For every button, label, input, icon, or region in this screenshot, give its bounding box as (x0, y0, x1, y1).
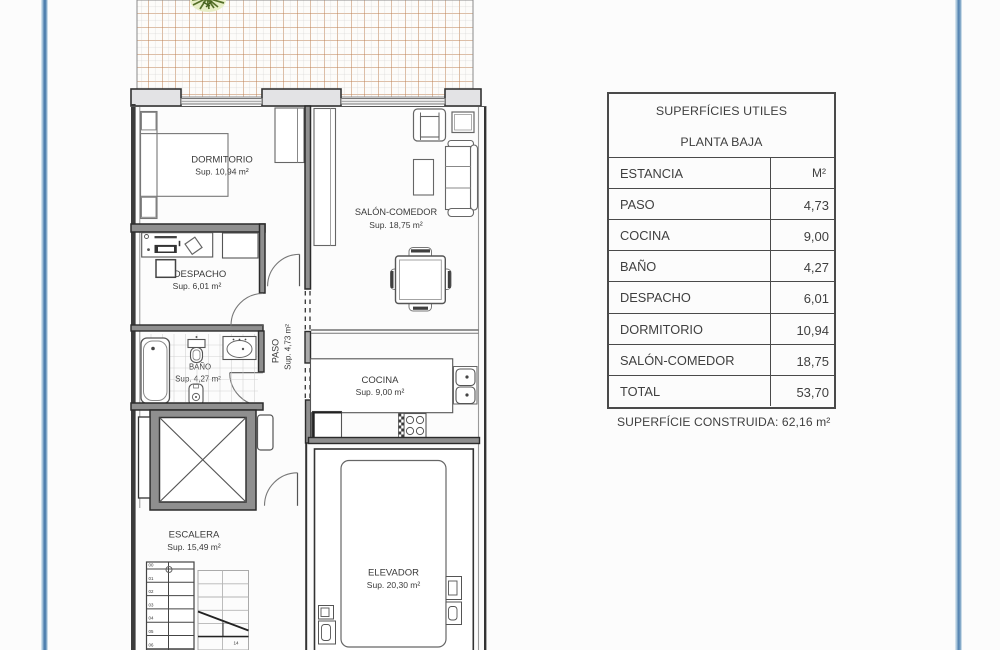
svg-text:03: 03 (149, 602, 154, 607)
svg-text:ELEVADOR: ELEVADOR (368, 568, 419, 579)
svg-text:COCINA: COCINA (362, 375, 400, 386)
svg-text:Sup. 4,73 m²: Sup. 4,73 m² (284, 324, 293, 370)
svg-text:01: 01 (149, 576, 154, 581)
svg-text:14: 14 (234, 641, 240, 646)
svg-text:04: 04 (149, 616, 154, 621)
svg-text:Sup. 15,49 m²: Sup. 15,49 m² (167, 542, 221, 552)
svg-text:DORMITORIO: DORMITORIO (191, 155, 253, 166)
svg-text:02: 02 (149, 589, 154, 594)
svg-text:ESCALERA: ESCALERA (169, 530, 220, 541)
svg-text:Sup. 20,30 m²: Sup. 20,30 m² (367, 580, 421, 590)
svg-text:Sup. 6,01 m²: Sup. 6,01 m² (173, 281, 222, 291)
svg-text:BAÑO: BAÑO (189, 363, 211, 372)
svg-text:Sup. 18,75 m²: Sup. 18,75 m² (369, 220, 423, 230)
svg-text:Sup. 9,00 m²: Sup. 9,00 m² (356, 387, 405, 397)
svg-text:Sup. 4,27 m²: Sup. 4,27 m² (175, 375, 221, 384)
svg-text:06: 06 (149, 642, 154, 647)
svg-text:00: 00 (149, 563, 154, 568)
svg-text:SALÓN-COMEDOR: SALÓN-COMEDOR (355, 207, 438, 217)
svg-text:DESPACHO: DESPACHO (174, 269, 227, 280)
svg-text:Sup. 10,94 m²: Sup. 10,94 m² (195, 167, 249, 177)
svg-text:PASO: PASO (271, 339, 281, 363)
svg-text:05: 05 (149, 629, 154, 634)
